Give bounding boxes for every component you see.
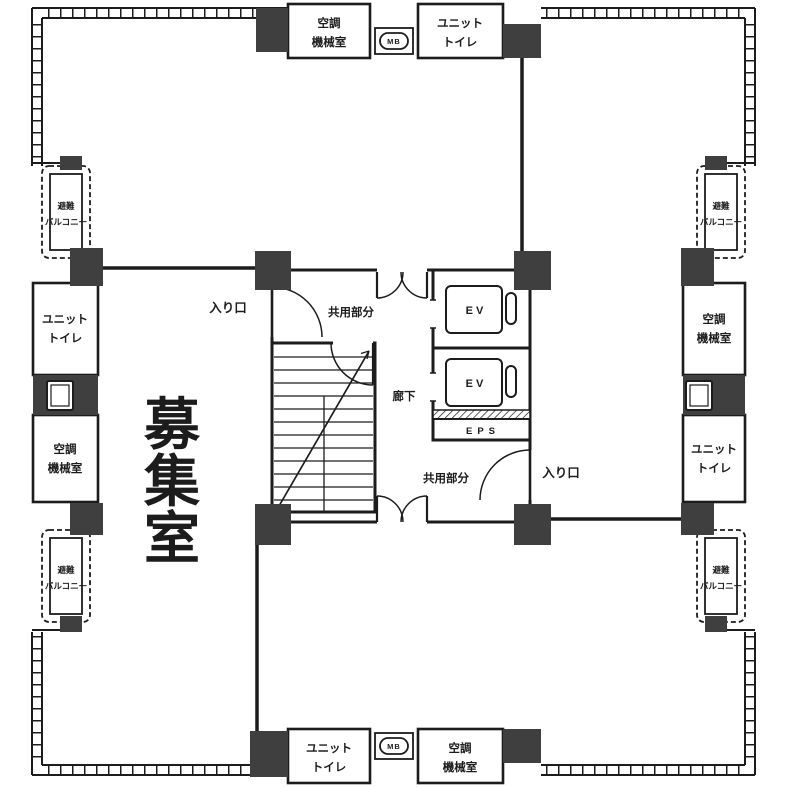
column [681, 503, 714, 535]
label-hvac-left: 空調 [54, 442, 77, 456]
room-hvac-bottom [418, 729, 503, 783]
label-toilet-right: ユニット [691, 443, 737, 456]
balcony-tab [705, 156, 727, 170]
label-balcony-bottom-right: 避難 [712, 565, 730, 575]
label-vacant-room: 室 [144, 509, 200, 571]
column [256, 8, 288, 52]
label-toilet-left: ユニット [42, 313, 88, 326]
label-balcony-bottom-left: 避難 [57, 565, 75, 575]
room-unit-toilet-left [33, 283, 98, 375]
label-hvac-top: 空調 [318, 16, 341, 30]
label-hvac-bottom: 空調 [449, 741, 472, 755]
label-toilet-top: ユニット [437, 17, 483, 30]
balcony-tab [60, 616, 82, 632]
label-hvac-left: 機械室 [48, 461, 83, 475]
column [514, 251, 551, 290]
label-vacant-room: 募 [143, 395, 201, 457]
label-corridor: 廊下 [393, 389, 416, 403]
label-meter-top: MB [387, 37, 401, 46]
room-unit-toilet-bottom [288, 729, 370, 783]
label-toilet-right: トイレ [697, 462, 732, 475]
label-balcony-top-right: バルコニー [700, 217, 742, 227]
label-toilet-bottom: トイレ [312, 761, 347, 774]
label-eps: EPS [466, 426, 500, 437]
column [250, 731, 288, 777]
room-unit-toilet-top [418, 4, 503, 58]
eps-hatch-band [433, 410, 530, 419]
label-entrance-right: 入り口 [542, 466, 580, 480]
label-elevator-1: EV [466, 305, 487, 317]
plan-labels: 空調 機械室 MB ユニット トイレ ユニット トイレ MB 空調 機械室 ユニ… [42, 16, 742, 774]
label-hvac-top: 機械室 [312, 35, 347, 49]
column [514, 504, 551, 545]
label-toilet-left: トイレ [48, 332, 83, 345]
column [681, 248, 714, 286]
balcony-tab [60, 156, 82, 170]
room-hvac-left [33, 415, 98, 502]
balcony-bottom-right [697, 530, 745, 622]
service-rooms [33, 4, 745, 783]
column [503, 24, 541, 58]
label-hvac-right: 機械室 [697, 331, 732, 345]
column [70, 248, 103, 286]
room-unit-toilet-right [683, 415, 745, 502]
label-balcony-top-left: 避難 [57, 201, 75, 211]
room-hvac-right [683, 283, 745, 375]
balcony-top-left [42, 166, 90, 258]
label-hvac-bottom: 機械室 [443, 760, 478, 774]
label-hvac-right: 空調 [703, 312, 726, 326]
column [70, 503, 103, 535]
balcony-top-right [697, 166, 745, 258]
columns [33, 8, 745, 777]
door-entrance-left [272, 287, 322, 337]
label-entrance-left: 入り口 [209, 301, 247, 315]
label-elevator-2: EV [466, 378, 487, 390]
floor-plan: 空調 機械室 MB ユニット トイレ ユニット トイレ MB 空調 機械室 ユニ… [0, 0, 787, 787]
floor-plan-drawing: 空調 機械室 MB ユニット トイレ ユニット トイレ MB 空調 機械室 ユニ… [0, 0, 787, 787]
label-balcony-bottom-left: バルコニー [45, 581, 87, 591]
column [255, 251, 291, 290]
label-common-area-upper: 共用部分 [328, 305, 374, 319]
label-common-area-lower: 共用部分 [423, 471, 469, 485]
door-double-top [377, 272, 427, 298]
column [255, 504, 291, 545]
label-balcony-top-left: バルコニー [45, 217, 87, 227]
label-toilet-top: トイレ [443, 36, 478, 49]
label-vacant-room: 集 [143, 452, 200, 514]
balcony-tab [705, 616, 727, 632]
door-double-bottom [377, 496, 427, 522]
label-toilet-bottom: ユニット [306, 742, 352, 755]
door-entrance-right [480, 450, 530, 500]
balcony-bottom-left [42, 530, 90, 622]
room-hvac-top [288, 4, 370, 58]
column [503, 729, 541, 763]
label-meter-bottom: MB [387, 742, 401, 751]
label-balcony-bottom-right: バルコニー [700, 581, 742, 591]
label-balcony-top-right: 避難 [712, 201, 730, 211]
